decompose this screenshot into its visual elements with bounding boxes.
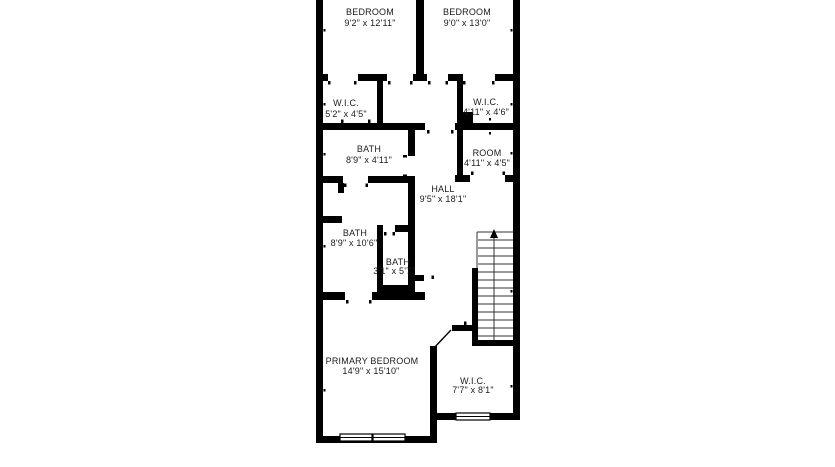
room-label-bath-small-dims: 3'1" x 5'7" xyxy=(373,266,415,276)
window xyxy=(340,434,372,441)
room-label-primary-bedroom-name: PRIMARY BEDROOM xyxy=(326,356,419,366)
room-label-bath-top-name: BATH xyxy=(357,144,381,154)
room-label-bedroom-right-dims: 9'0" x 13'0" xyxy=(444,18,491,28)
door-swing xyxy=(432,330,451,350)
room-label-bath-middle-dims: 8'9" x 10'6" xyxy=(331,238,378,248)
room-label-bedroom-left-name: BEDROOM xyxy=(346,7,394,17)
room-label-bath-middle-name: BATH xyxy=(343,228,367,238)
stairs-direction-arrow-icon xyxy=(490,229,498,238)
room-label-bedroom-right-name: BEDROOM xyxy=(443,7,491,17)
room-label-room-name: ROOM xyxy=(473,148,502,158)
dimension-markers xyxy=(324,29,513,392)
room-label-hall-name: HALL xyxy=(431,184,454,194)
staircase xyxy=(477,229,513,340)
room-label-bedroom-left-dims: 9'2" x 12'11" xyxy=(344,18,395,28)
floor-plan: BEDROOM 9'2" x 12'11" BEDROOM 9'0" x 13'… xyxy=(0,0,835,467)
room-label-hall-dims: 9'5" x 18'1" xyxy=(420,194,467,204)
room-label-primary-bedroom-dims: 14'9" x 15'10" xyxy=(342,366,399,376)
room-label-wic-right-name: W.I.C. xyxy=(473,97,499,107)
window xyxy=(456,413,490,420)
room-label-wic-primary-dims: 7'7" x 8'1" xyxy=(452,385,494,395)
walls-layer xyxy=(316,0,520,443)
room-label-wic-left-name: W.I.C. xyxy=(333,98,359,108)
room-label-wic-right-dims: 4'11" x 4'6" xyxy=(463,107,509,117)
room-label-bath-top-dims: 8'9" x 4'11" xyxy=(346,155,392,165)
window xyxy=(373,434,405,441)
room-label-room-dims: 4'11" x 4'5" xyxy=(464,158,510,168)
room-label-wic-left-dims: 5'2" x 4'5" xyxy=(325,109,367,119)
floorplan-canvas: BEDROOM 9'2" x 12'11" BEDROOM 9'0" x 13'… xyxy=(0,0,835,467)
